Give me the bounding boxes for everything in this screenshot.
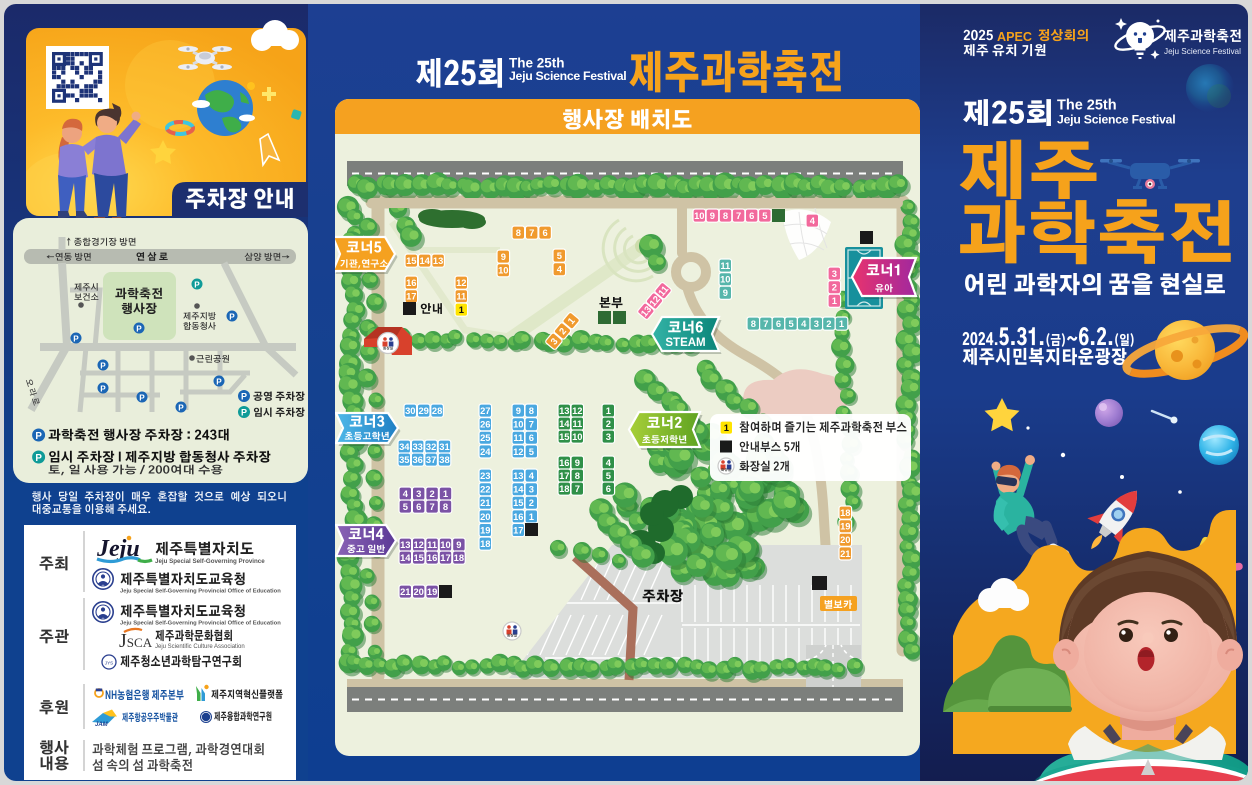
svg-text:1: 1 <box>724 422 729 433</box>
svg-text:JYS: JYS <box>105 661 113 666</box>
svg-text:4: 4 <box>810 215 816 226</box>
svg-text:10: 10 <box>440 539 450 550</box>
svg-text:14: 14 <box>419 255 430 266</box>
svg-text:32: 32 <box>426 441 436 452</box>
svg-text:4: 4 <box>529 470 535 481</box>
svg-text:19: 19 <box>840 521 850 532</box>
svg-text:10: 10 <box>513 419 523 430</box>
svg-text:P: P <box>136 324 142 333</box>
svg-text:17: 17 <box>440 552 450 563</box>
svg-text:21: 21 <box>840 548 850 559</box>
svg-text:5: 5 <box>529 446 534 457</box>
svg-text:14: 14 <box>559 418 570 429</box>
svg-text:Jeju Science Festival: Jeju Science Festival <box>1164 47 1241 56</box>
svg-text:16: 16 <box>406 277 416 288</box>
svg-text:JAM: JAM <box>95 722 109 728</box>
svg-text:Jeju Special Self-Governing Pr: Jeju Special Self-Governing Provincial O… <box>120 621 281 627</box>
svg-text:19: 19 <box>427 586 437 597</box>
svg-text:7: 7 <box>529 419 534 430</box>
svg-text:27: 27 <box>480 405 490 416</box>
svg-text:P: P <box>194 280 200 289</box>
svg-text:29: 29 <box>418 405 428 416</box>
svg-text:28: 28 <box>432 405 442 416</box>
svg-text:2: 2 <box>606 418 611 429</box>
svg-text:4: 4 <box>557 264 563 275</box>
svg-text:1: 1 <box>443 488 448 499</box>
svg-text:7: 7 <box>529 227 534 238</box>
svg-text:25: 25 <box>480 432 490 443</box>
svg-text:Jeju Science Festival: Jeju Science Festival <box>1057 113 1175 127</box>
svg-text:20: 20 <box>840 534 850 545</box>
svg-text:17: 17 <box>513 524 523 535</box>
svg-text:P: P <box>73 334 79 343</box>
svg-text:4: 4 <box>801 318 807 329</box>
svg-text:18: 18 <box>480 538 490 549</box>
svg-text:10: 10 <box>694 210 704 221</box>
svg-text:35: 35 <box>399 454 409 465</box>
svg-text:8: 8 <box>516 227 521 238</box>
svg-text:21: 21 <box>400 586 410 597</box>
svg-text:2: 2 <box>529 497 534 508</box>
svg-text:18: 18 <box>840 507 850 518</box>
svg-text:3: 3 <box>832 268 837 279</box>
svg-text:31: 31 <box>439 441 449 452</box>
svg-text:6: 6 <box>542 227 547 238</box>
svg-text:36: 36 <box>412 454 422 465</box>
svg-text:6: 6 <box>749 210 754 221</box>
svg-text:P: P <box>216 377 222 386</box>
svg-text:10: 10 <box>498 265 508 276</box>
svg-text:16: 16 <box>559 457 569 468</box>
svg-text:1: 1 <box>529 511 534 522</box>
svg-text:15: 15 <box>413 552 423 563</box>
svg-text:14: 14 <box>513 484 524 495</box>
svg-text:26: 26 <box>480 419 490 430</box>
svg-text:1: 1 <box>839 318 844 329</box>
svg-text:3: 3 <box>529 484 534 495</box>
svg-text:11: 11 <box>427 539 437 550</box>
svg-text:9: 9 <box>516 405 521 416</box>
svg-text:7: 7 <box>736 210 741 221</box>
svg-text:22: 22 <box>480 484 490 495</box>
svg-text:18: 18 <box>559 483 569 494</box>
svg-text:23: 23 <box>480 470 490 481</box>
svg-text:15: 15 <box>559 431 569 442</box>
svg-text:8: 8 <box>575 470 580 481</box>
svg-text:3: 3 <box>814 318 819 329</box>
svg-text:21: 21 <box>480 497 490 508</box>
svg-text:20: 20 <box>480 511 490 522</box>
svg-text:5: 5 <box>762 210 767 221</box>
svg-text:6: 6 <box>416 501 421 512</box>
svg-text:5: 5 <box>788 318 793 329</box>
svg-text:8: 8 <box>529 405 534 416</box>
svg-text:17: 17 <box>559 470 569 481</box>
svg-text:2: 2 <box>429 488 434 499</box>
svg-text:17: 17 <box>406 291 416 302</box>
svg-text:9: 9 <box>501 251 506 262</box>
svg-text:13: 13 <box>400 539 410 550</box>
svg-text:P: P <box>241 392 247 402</box>
svg-text:6: 6 <box>606 483 611 494</box>
svg-text:P: P <box>35 453 42 464</box>
svg-text:STEAM: STEAM <box>665 337 705 349</box>
svg-text:8: 8 <box>723 210 728 221</box>
svg-text:18: 18 <box>454 552 464 563</box>
svg-text:15: 15 <box>513 497 523 508</box>
svg-text:13: 13 <box>559 405 569 416</box>
svg-text:6: 6 <box>776 318 781 329</box>
svg-text:APEC: APEC <box>997 30 1032 44</box>
svg-text:9: 9 <box>456 539 461 550</box>
svg-text:P: P <box>178 403 184 412</box>
svg-text:1: 1 <box>459 304 464 315</box>
svg-text:13: 13 <box>433 255 443 266</box>
svg-text:2: 2 <box>832 282 837 293</box>
svg-text:10: 10 <box>572 431 582 442</box>
svg-text:P: P <box>100 384 106 393</box>
svg-text:20: 20 <box>413 586 423 597</box>
svg-text:11: 11 <box>720 260 730 271</box>
svg-text:2: 2 <box>826 318 831 329</box>
svg-text:P: P <box>139 393 145 402</box>
svg-text:1: 1 <box>606 405 611 416</box>
svg-text:P: P <box>241 408 247 418</box>
svg-text:9: 9 <box>575 457 580 468</box>
svg-text:11: 11 <box>572 418 582 429</box>
svg-text:6: 6 <box>529 432 534 443</box>
svg-text:Jeju Special Self-Governing Pr: Jeju Special Self-Governing Province <box>155 558 265 565</box>
svg-text:1: 1 <box>832 295 837 306</box>
svg-text:Jeju Scientific Culture Associ: Jeju Scientific Culture Association <box>155 644 245 650</box>
svg-text:9: 9 <box>710 210 715 221</box>
svg-text:30: 30 <box>405 405 415 416</box>
svg-text:12: 12 <box>456 277 466 288</box>
svg-text:5: 5 <box>606 470 611 481</box>
svg-text:12: 12 <box>413 539 423 550</box>
svg-text:9: 9 <box>723 287 728 298</box>
svg-text:13: 13 <box>513 470 523 481</box>
svg-text:12: 12 <box>513 446 523 457</box>
svg-text:Jeju Science Festival: Jeju Science Festival <box>509 69 626 83</box>
svg-text:12: 12 <box>572 405 582 416</box>
svg-text:3: 3 <box>606 431 611 442</box>
svg-text:7: 7 <box>575 483 580 494</box>
svg-text:16: 16 <box>427 552 437 563</box>
svg-text:16: 16 <box>513 511 523 522</box>
svg-text:7: 7 <box>763 318 768 329</box>
svg-text:4: 4 <box>606 457 612 468</box>
svg-text:33: 33 <box>412 441 422 452</box>
svg-text:11: 11 <box>513 432 523 443</box>
svg-text:15: 15 <box>406 255 416 266</box>
svg-text:5: 5 <box>557 250 562 261</box>
svg-text:11: 11 <box>456 291 466 302</box>
svg-text:8: 8 <box>751 318 756 329</box>
svg-text:Jeju Special Self-Governing Pr: Jeju Special Self-Governing Provincial O… <box>120 589 281 595</box>
svg-text:19: 19 <box>480 524 490 535</box>
svg-text:3: 3 <box>416 488 421 499</box>
svg-text:4: 4 <box>403 488 409 499</box>
svg-text:8: 8 <box>443 501 448 512</box>
svg-text:P: P <box>100 361 106 370</box>
svg-text:37: 37 <box>426 454 436 465</box>
svg-text:34: 34 <box>399 441 410 452</box>
svg-text:38: 38 <box>439 454 449 465</box>
svg-text:7: 7 <box>429 501 434 512</box>
svg-text:P: P <box>229 312 235 321</box>
svg-text:14: 14 <box>400 552 411 563</box>
svg-text:5: 5 <box>403 501 408 512</box>
svg-text:P: P <box>35 431 42 442</box>
svg-text:The 25th: The 25th <box>1057 98 1117 114</box>
svg-text:10: 10 <box>720 274 730 285</box>
svg-text:24: 24 <box>480 446 491 457</box>
